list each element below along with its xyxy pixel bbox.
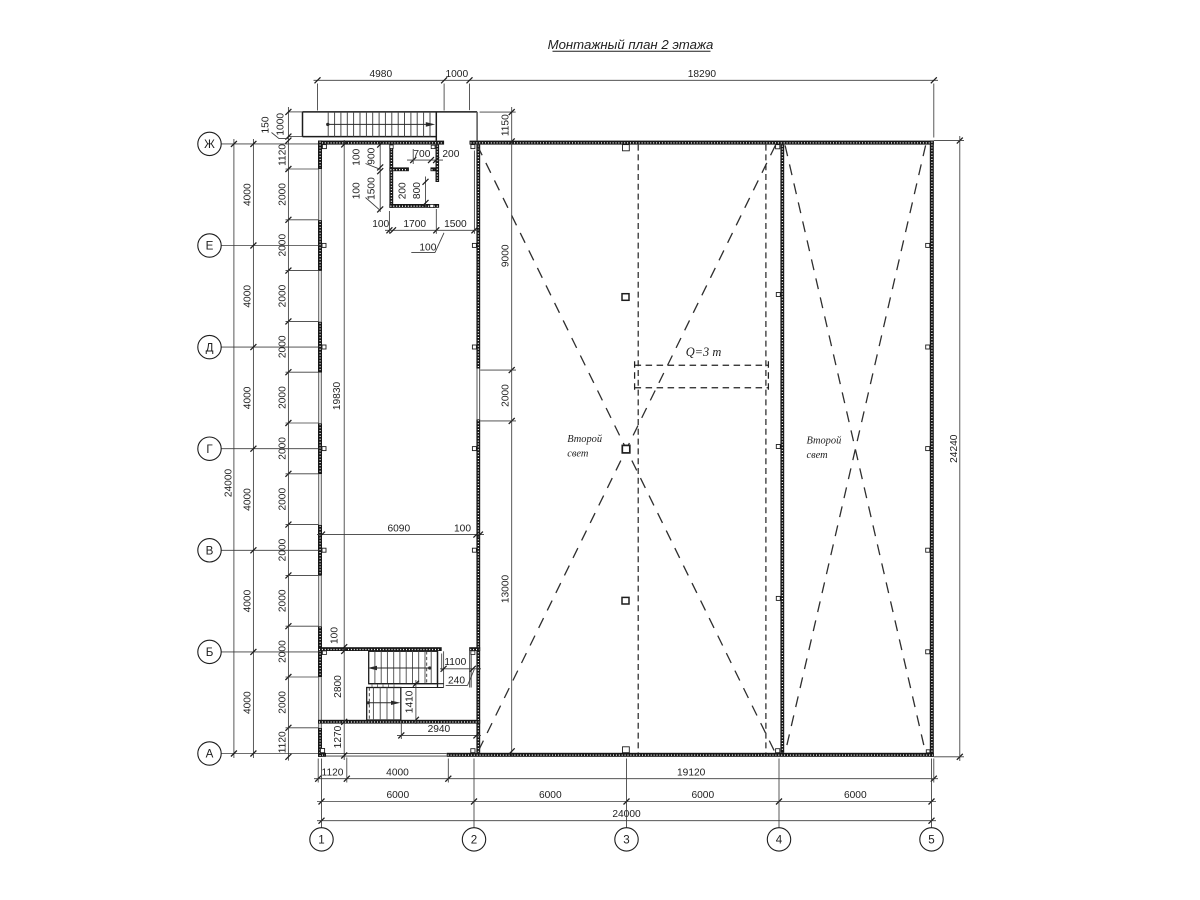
- svg-text:6000: 6000: [691, 790, 714, 801]
- svg-text:А: А: [206, 748, 214, 761]
- svg-text:1000: 1000: [275, 113, 286, 136]
- svg-text:4000: 4000: [243, 589, 254, 612]
- svg-text:2000: 2000: [278, 335, 289, 358]
- svg-text:24000: 24000: [223, 469, 234, 498]
- svg-text:1410: 1410: [405, 690, 416, 713]
- svg-text:100: 100: [419, 242, 436, 253]
- svg-text:1150: 1150: [501, 114, 512, 136]
- svg-text:2000: 2000: [278, 437, 289, 460]
- svg-text:19830: 19830: [332, 382, 343, 411]
- svg-text:200: 200: [398, 182, 409, 199]
- svg-text:100: 100: [351, 182, 362, 199]
- svg-text:240: 240: [448, 675, 465, 686]
- svg-text:4000: 4000: [243, 386, 254, 409]
- svg-text:2000: 2000: [278, 234, 289, 257]
- svg-text:6090: 6090: [387, 524, 410, 535]
- svg-text:Ж: Ж: [204, 138, 215, 151]
- svg-text:6000: 6000: [386, 790, 409, 801]
- svg-text:6000: 6000: [844, 790, 867, 801]
- svg-text:Д: Д: [206, 341, 214, 354]
- svg-text:100: 100: [372, 219, 389, 230]
- svg-text:1270: 1270: [333, 725, 344, 748]
- svg-text:2000: 2000: [501, 384, 512, 407]
- svg-text:700: 700: [413, 149, 430, 160]
- svg-text:Монтажный план 2 этажа: Монтажный план 2 этажа: [548, 37, 714, 52]
- svg-text:900: 900: [366, 147, 377, 164]
- svg-text:1120: 1120: [278, 144, 289, 166]
- svg-text:9000: 9000: [501, 244, 512, 267]
- svg-text:1120: 1120: [322, 767, 344, 778]
- svg-text:свет: свет: [567, 449, 589, 460]
- svg-text:6000: 6000: [539, 790, 562, 801]
- svg-text:2000: 2000: [278, 538, 289, 561]
- svg-text:200: 200: [442, 149, 459, 160]
- svg-text:свет: свет: [807, 450, 829, 461]
- svg-text:2000: 2000: [278, 691, 289, 714]
- svg-text:1120: 1120: [278, 731, 289, 753]
- svg-text:1700: 1700: [403, 219, 426, 230]
- svg-text:2000: 2000: [278, 640, 289, 663]
- svg-text:4000: 4000: [243, 183, 254, 206]
- svg-text:4000: 4000: [386, 767, 409, 778]
- svg-text:150: 150: [261, 116, 272, 133]
- svg-text:800: 800: [412, 182, 423, 199]
- svg-text:19120: 19120: [677, 767, 706, 778]
- svg-text:Г: Г: [206, 443, 213, 456]
- svg-text:100: 100: [351, 148, 362, 165]
- svg-text:100: 100: [330, 627, 341, 644]
- svg-text:4000: 4000: [243, 691, 254, 714]
- svg-text:5: 5: [928, 834, 934, 847]
- svg-text:13000: 13000: [501, 575, 512, 604]
- svg-text:100: 100: [454, 524, 471, 535]
- svg-text:1500: 1500: [366, 177, 377, 200]
- svg-text:В: В: [206, 545, 214, 558]
- svg-text:4980: 4980: [369, 69, 392, 80]
- svg-text:Второй: Второй: [807, 435, 843, 446]
- svg-text:2000: 2000: [278, 183, 289, 206]
- svg-text:Б: Б: [206, 646, 214, 659]
- svg-text:4000: 4000: [243, 285, 254, 308]
- svg-text:1100: 1100: [444, 657, 466, 668]
- svg-text:1: 1: [318, 834, 324, 847]
- svg-text:2000: 2000: [278, 589, 289, 612]
- svg-text:18290: 18290: [688, 69, 717, 80]
- svg-text:2000: 2000: [278, 488, 289, 511]
- svg-text:4: 4: [776, 834, 783, 847]
- svg-text:2800: 2800: [333, 675, 344, 698]
- svg-text:Е: Е: [206, 240, 214, 253]
- svg-text:3: 3: [623, 834, 629, 847]
- svg-text:2: 2: [471, 834, 477, 847]
- svg-text:1500: 1500: [444, 219, 467, 230]
- svg-text:4000: 4000: [243, 488, 254, 511]
- svg-text:24240: 24240: [949, 434, 960, 463]
- svg-text:1000: 1000: [445, 69, 468, 80]
- svg-text:2000: 2000: [278, 284, 289, 307]
- svg-text:Q=3 т: Q=3 т: [686, 345, 722, 359]
- svg-text:2940: 2940: [428, 724, 451, 735]
- svg-text:Второй: Второй: [567, 434, 603, 445]
- svg-text:2000: 2000: [278, 386, 289, 409]
